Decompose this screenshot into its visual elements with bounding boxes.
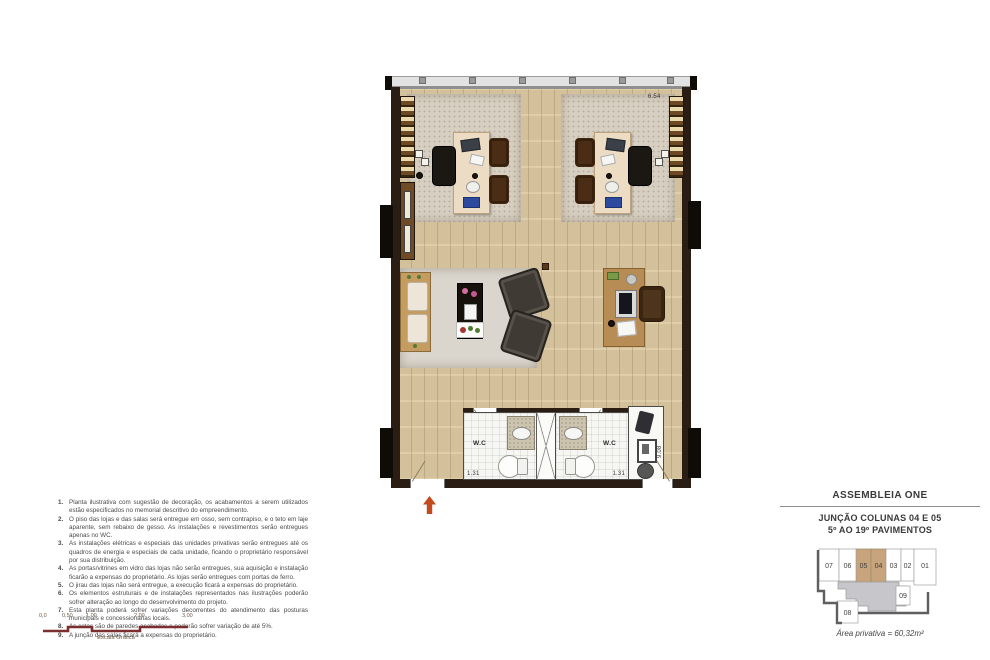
window-mullion [519, 77, 526, 84]
note-item: 1.Planta ilustrativa com sugestão de dec… [58, 499, 308, 516]
coffee-table [457, 283, 483, 339]
column [688, 428, 701, 478]
column [380, 428, 393, 478]
keyplan-unit-04: 04 [875, 563, 883, 570]
note-item: 4.As portas/vitrines em vidro das lojas … [58, 565, 308, 582]
column [380, 205, 393, 258]
window-mullion [619, 77, 626, 84]
graphic-scale: 0,0 0,50 1,00 2,00 3,00 Escala Gráfica [33, 613, 201, 647]
note-item: 3.As instalações elétricas e especiais d… [58, 540, 308, 565]
scale-caption: Escala Gráfica [43, 635, 189, 641]
scale-bar-graphic [33, 620, 201, 634]
note-item: 6.Os elementos estruturais e de instalaç… [58, 590, 308, 607]
wc-dimension: 1.31 [613, 471, 625, 477]
floor-marker [542, 263, 549, 270]
wall-item [655, 158, 663, 166]
window-mullion [569, 77, 576, 84]
wall-item [416, 172, 423, 179]
wall-item [661, 150, 669, 158]
entry-door-opening [410, 479, 445, 488]
wc-right: W.C 1.31 [555, 412, 629, 480]
depth-dimension: 9.08 [657, 446, 663, 458]
window-mullion [469, 77, 476, 84]
sideboard [400, 182, 415, 260]
scale-label: 2,00 [134, 613, 145, 619]
desk [594, 132, 631, 214]
sofa [400, 272, 431, 352]
scale-label: 0,0 [39, 613, 47, 619]
width-dimension: 6.54 [648, 94, 660, 100]
keyplan-unit-05: 05 [860, 563, 868, 570]
private-area-label: Área privativa = 60,32m² [778, 629, 982, 638]
wc-label: W.C [603, 440, 616, 447]
wc-label: W.C [473, 440, 486, 447]
wc-left: W.C 1.31 [463, 412, 537, 480]
keyplan-unit-01: 01 [921, 563, 929, 570]
key-plan: 07 06 05 04 03 02 01 09 08 [806, 542, 954, 628]
keyplan-unit-07: 07 [825, 563, 833, 570]
scale-label: 0,50 [62, 613, 73, 619]
divider [780, 506, 980, 507]
shelving-unit [400, 96, 415, 178]
unit-title-line2: 5º AO 19º PAVIMENTOS [778, 525, 982, 537]
shelving-unit [669, 96, 684, 178]
column [688, 201, 701, 249]
office-chair [432, 146, 456, 186]
keyplan-unit-03: 03 [890, 563, 898, 570]
window-mullion [419, 77, 426, 84]
note-item: 2.O piso das lojas e das salas será entr… [58, 516, 308, 541]
unit-title-line1: JUNÇÃO COLUNAS 04 E 05 [778, 513, 982, 525]
ventilation-shaft [536, 412, 556, 480]
guest-chair [575, 175, 595, 204]
office-chair [628, 146, 652, 186]
window-mullion [667, 77, 674, 84]
wall-item [421, 158, 429, 166]
window-band [391, 76, 691, 89]
guest-chair [489, 138, 509, 167]
scale-label: 1,00 [86, 613, 97, 619]
guest-chair [575, 138, 595, 167]
wall-item [415, 150, 423, 158]
wc-dimension: 1.31 [467, 471, 479, 477]
scale-label: 3,00 [182, 613, 193, 619]
keyplan-unit-06: 06 [844, 563, 852, 570]
keyplan-unit-02: 02 [904, 563, 912, 570]
keyplan-unit-09: 09 [899, 593, 907, 600]
entry-arrow-icon [422, 496, 437, 515]
utility-closet [628, 406, 664, 480]
project-title: ASSEMBLEIA ONE [778, 490, 982, 501]
wall-corner [690, 76, 697, 90]
floor-plan: W.C 1.31 W.C 1.31 6.54 9.08 [385, 76, 697, 492]
keyplan-unit-08: 08 [844, 610, 852, 617]
note-item: 5.O jirau das lojas não será entregue, a… [58, 582, 308, 590]
desk [453, 132, 490, 214]
guest-chair [489, 175, 509, 204]
info-panel: ASSEMBLEIA ONE JUNÇÃO COLUNAS 04 E 05 5º… [778, 490, 982, 536]
office-chair [639, 286, 665, 322]
